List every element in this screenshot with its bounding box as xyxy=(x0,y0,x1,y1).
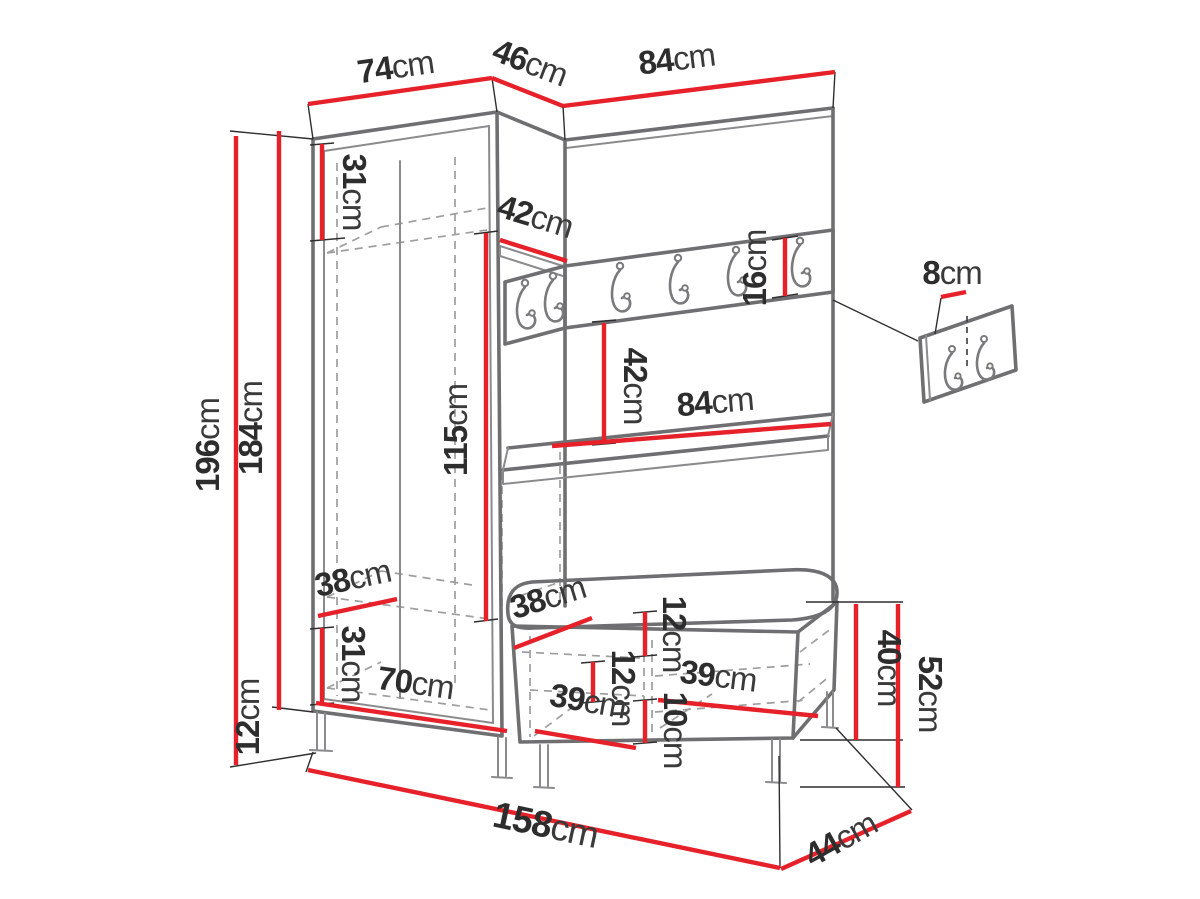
dim-label-hook-offset: 8cm xyxy=(922,254,981,291)
dim-label-wardrobe-inner-width: 70cm xyxy=(375,659,456,706)
dim-label-top-left-width: 74cm xyxy=(355,43,436,90)
dim-label-hook-rail-height: 16cm xyxy=(736,230,773,307)
bench-right-leg xyxy=(766,739,786,783)
dim-label-bench-total-height: 52cm xyxy=(912,656,949,733)
diagram-canvas: 74cm 46cm 84cm 196cm 184cm 12cm 31cm 115… xyxy=(0,0,1200,899)
dim-line-hook-offset xyxy=(941,292,966,297)
coat-hook-icon xyxy=(545,273,563,322)
dimension-labels: 74cm 46cm 84cm 196cm 184cm 12cm 31cm 115… xyxy=(189,31,982,873)
dim-label-open-gap-height: 42cm xyxy=(617,348,654,425)
furniture-dimension-diagram: 74cm 46cm 84cm 196cm 184cm 12cm 31cm 115… xyxy=(0,0,1200,899)
wardrobe-right-leg xyxy=(492,737,512,778)
coat-hook-icon xyxy=(517,280,535,329)
dim-label-corner-width: 46cm xyxy=(488,31,573,93)
middle-shelf xyxy=(503,414,833,484)
dim-label-top-right-width: 84cm xyxy=(636,36,717,82)
coat-hook-icon xyxy=(612,263,630,312)
dim-label-top-shelf-height: 31cm xyxy=(336,154,373,231)
dim-label-bench-body-height: 40cm xyxy=(871,630,908,707)
hook-detail-view xyxy=(833,298,1016,402)
coat-hook-icon xyxy=(670,255,688,304)
dim-label-bench-depth: 38cm xyxy=(506,568,590,626)
coat-hook-icon xyxy=(792,238,810,287)
detail-leader-line xyxy=(833,300,918,341)
dim-label-hanging-space-height: 115cm xyxy=(437,384,474,476)
coat-hook-icon xyxy=(977,336,994,380)
dim-label-leg-height: 12cm xyxy=(229,679,266,756)
extension-lines xyxy=(230,72,912,868)
wardrobe-left-leg xyxy=(310,712,332,751)
coat-hook-icon xyxy=(945,346,962,390)
corner-and-back-panel xyxy=(497,108,833,606)
dim-label-bench-total-depth: 44cm xyxy=(798,804,883,874)
dim-label-body-height: 184cm xyxy=(232,381,269,475)
dim-line-corner-shelf-depth xyxy=(500,240,567,261)
dim-label-shelf-width: 84cm xyxy=(675,380,755,424)
bench-left-leg xyxy=(534,745,554,788)
dim-label-total-width: 158cm xyxy=(489,794,601,856)
dim-label-lower-drawer-height: 10cm xyxy=(657,692,694,769)
dim-line-top-right-width xyxy=(563,72,835,106)
dim-label-bottom-section-height: 31cm xyxy=(335,626,372,703)
dim-label-total-height: 196cm xyxy=(189,398,226,492)
